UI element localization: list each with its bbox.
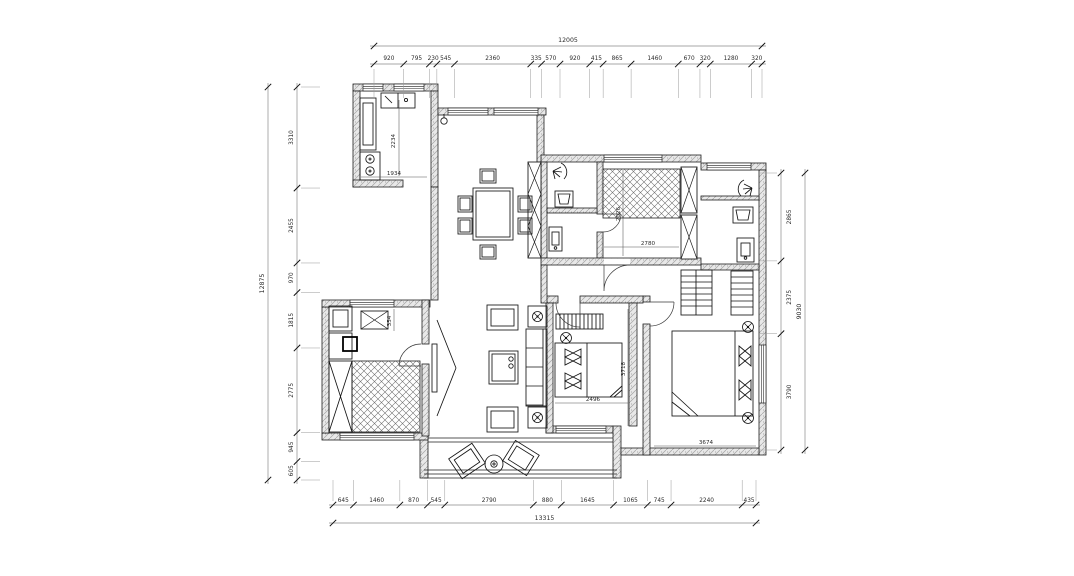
- balcony-furniture: [424, 438, 617, 479]
- cloakroom-floor: [603, 169, 680, 218]
- sofa: [526, 329, 547, 406]
- dim-label: 605: [289, 465, 295, 476]
- cloakroom-depth-dim: 2026: [616, 206, 622, 221]
- kitchen-fixtures: [360, 93, 415, 180]
- dim-label: 3310: [289, 130, 295, 145]
- dim-label: 435: [744, 498, 755, 504]
- dim-label: 320: [751, 56, 762, 62]
- bedroom-depth-dim: 3718: [621, 361, 627, 376]
- balcony-railing: [424, 470, 617, 478]
- balcony-armchair: [449, 443, 486, 479]
- dim-label: 1065: [623, 498, 638, 504]
- kitchen-counter-width-dim: 1934: [387, 171, 402, 177]
- dim-label: 2790: [482, 498, 497, 504]
- door-stop-symbol: [441, 114, 447, 124]
- master-wardrobes: [681, 270, 753, 315]
- dim-label: 545: [431, 498, 442, 504]
- living-room-furniture: [432, 305, 547, 432]
- dim-label: 12005: [558, 37, 578, 44]
- cooktop: [360, 152, 380, 180]
- dim-label: 570: [545, 56, 556, 62]
- floor-plan-svg: 2234 1934 2780 2026 354 2496 3718 3674 9…: [0, 0, 1074, 576]
- master-bedroom-furniture: [672, 331, 753, 416]
- toilet: [549, 227, 562, 251]
- dim-label: 1280: [724, 56, 739, 62]
- plant-lamp-symbol: [561, 333, 572, 344]
- dim-label: 3790: [787, 384, 793, 399]
- dining-table-set: [458, 169, 532, 259]
- plant-lamp-symbol: [743, 413, 754, 424]
- coffee-table: [489, 351, 518, 384]
- dim-label: 2455: [289, 218, 295, 233]
- dim-label: 1645: [580, 498, 595, 504]
- dim-label: 1460: [647, 56, 662, 62]
- toilet: [737, 238, 754, 262]
- plant-lamp-symbol: [533, 413, 543, 423]
- bathroom-1-fixtures: [549, 163, 573, 251]
- dim-label: 545: [440, 56, 451, 62]
- dim-label: 795: [411, 56, 422, 62]
- dim-label: 1815: [289, 313, 295, 328]
- dim-label: 2775: [289, 383, 295, 398]
- dim-label: 865: [612, 56, 623, 62]
- cloakroom-width-dim: 2780: [641, 241, 656, 247]
- study-duct-width-dim: 354: [387, 315, 393, 326]
- dim-label: 2375: [787, 290, 793, 305]
- dim-label: 920: [569, 56, 580, 62]
- tv-unit: [432, 344, 437, 392]
- shower-symbol: [553, 163, 567, 179]
- dim-label: 945: [289, 441, 295, 452]
- dim-label: 12875: [259, 274, 266, 294]
- tatami-floor: [352, 361, 420, 432]
- master-bedroom-width-dim: 3674: [699, 440, 714, 446]
- bedroom-furniture: [555, 314, 622, 397]
- dim-label: 670: [684, 56, 695, 62]
- bedroom-width-dim: 2496: [586, 397, 601, 403]
- dim-label: 970: [289, 272, 295, 283]
- floor-plan-canvas: 2234 1934 2780 2026 354 2496 3718 3674 9…: [0, 0, 1074, 576]
- dim-label: 320: [700, 56, 711, 62]
- dim-label: 645: [338, 498, 349, 504]
- dim-label: 230: [428, 56, 439, 62]
- bathroom-2-fixtures: [733, 180, 754, 262]
- shower-symbol: [738, 180, 752, 196]
- kitchen-counter-length-dim: 2234: [391, 133, 397, 148]
- plant-lamp-symbol: [533, 312, 543, 322]
- dim-label: 880: [542, 498, 553, 504]
- dim-label: 2360: [485, 56, 500, 62]
- dim-label: 335: [531, 56, 542, 62]
- dim-label: 920: [383, 56, 394, 62]
- dim-label: 415: [591, 56, 602, 62]
- dim-label: 870: [408, 498, 419, 504]
- dim-label: 2865: [787, 209, 793, 224]
- dim-label: 1460: [369, 498, 384, 504]
- dim-label: 745: [654, 498, 665, 504]
- dim-label: 2240: [699, 498, 714, 504]
- dim-label: 13315: [535, 515, 555, 522]
- dim-label: 9030: [796, 304, 803, 320]
